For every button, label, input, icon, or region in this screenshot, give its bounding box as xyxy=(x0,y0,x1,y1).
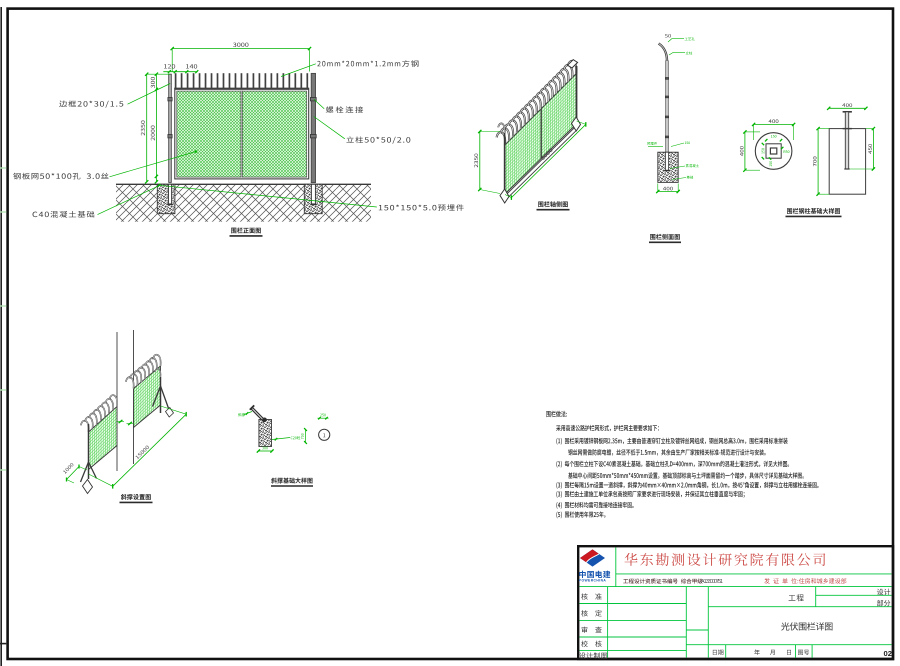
svg-text:POWERCHINA: POWERCHINA xyxy=(579,578,607,582)
svg-text:A133000751: A133000751 xyxy=(701,579,723,585)
svg-text:02: 02 xyxy=(884,649,892,658)
